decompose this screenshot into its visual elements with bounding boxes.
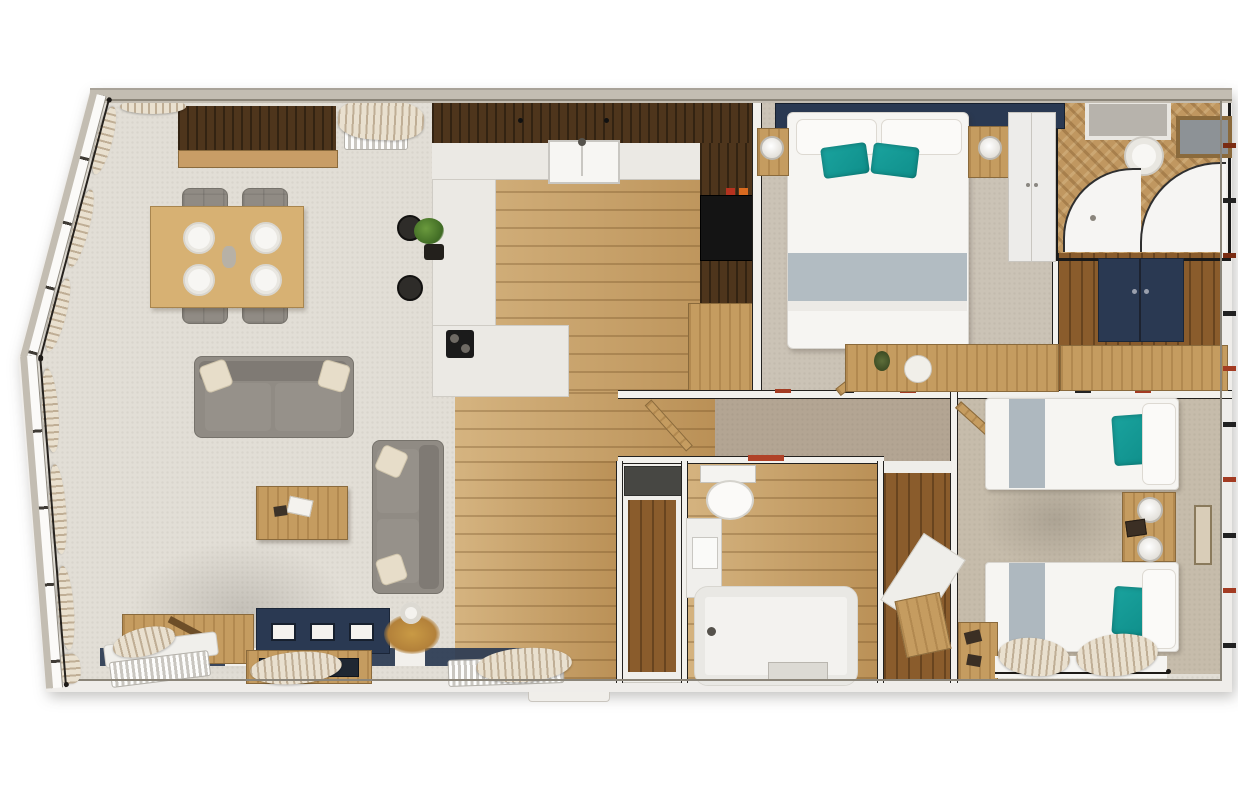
bath-faucet <box>707 627 716 636</box>
rail-finial <box>1166 669 1171 674</box>
rail-finial <box>106 97 112 103</box>
cabinet-handle <box>518 118 523 123</box>
shower-drain <box>1090 215 1096 221</box>
wall-cupboard-left <box>616 461 623 683</box>
kitchen-sink <box>548 140 620 184</box>
sideboard <box>178 106 336 150</box>
cabinet-handle <box>1132 289 1137 294</box>
airing-cupboard-floor <box>628 500 676 672</box>
dressing-oak-bench <box>1060 345 1228 391</box>
sofa-seat <box>275 383 341 431</box>
bed-runner <box>788 253 967 301</box>
ensuite-mirror <box>1176 116 1232 158</box>
tall-black-appliance <box>700 195 756 261</box>
cladding-tick <box>1223 311 1236 316</box>
right-wall-inner-line <box>1220 101 1222 681</box>
media-frame <box>349 623 374 641</box>
desk-frame <box>964 629 982 645</box>
wall-art <box>1194 505 1212 565</box>
bar-stool <box>397 275 423 301</box>
sink-divider <box>581 144 583 176</box>
cladding-tick <box>1223 253 1236 258</box>
cabinet-handle <box>604 118 609 123</box>
vanity-sink <box>692 537 718 569</box>
sink-faucet <box>578 138 586 146</box>
dressing-table <box>845 344 1059 392</box>
wardrobe-door-split <box>1031 113 1032 261</box>
place-setting <box>250 264 282 296</box>
wardrobe-handle <box>1026 183 1030 187</box>
teal-cushion <box>820 142 870 179</box>
media-wall <box>256 608 390 654</box>
bed-runner <box>1009 399 1045 488</box>
spice-jar <box>739 188 748 195</box>
wall-bathroom-wardrobe <box>877 461 884 683</box>
lower-oak-cabinet <box>688 303 756 395</box>
teal-cushion <box>870 142 919 178</box>
twin-bed-top <box>985 398 1179 490</box>
toilet-bowl <box>706 480 754 520</box>
media-frame <box>271 623 296 641</box>
cladding-tick <box>1223 643 1236 648</box>
sideboard-front <box>178 150 338 168</box>
coffee-table-decor <box>273 505 287 517</box>
cabinet-split <box>1139 259 1141 341</box>
cladding-tick <box>1223 198 1236 203</box>
cladding-tick <box>1223 422 1236 427</box>
inner-hall-carpet <box>715 397 952 461</box>
skylight <box>1085 100 1171 140</box>
place-setting <box>250 222 282 254</box>
wardrobe-top-shelf <box>884 461 952 473</box>
pan <box>461 344 470 353</box>
pillow <box>1142 569 1176 649</box>
place-setting <box>183 222 215 254</box>
pillow <box>1142 403 1176 485</box>
cladding-tick <box>1223 588 1236 593</box>
cladding-tick <box>1223 477 1236 482</box>
rail-finial <box>64 682 69 687</box>
cladding-tick <box>1223 533 1236 538</box>
cooktop <box>446 330 474 358</box>
corner-desk <box>958 622 998 680</box>
photo-frame <box>1125 519 1147 538</box>
floor-plan-render <box>0 0 1238 795</box>
media-frame <box>310 623 335 641</box>
bedside-lamp <box>1137 536 1163 562</box>
spice-jar <box>726 188 735 195</box>
bar-plant <box>414 218 444 244</box>
wall-twin-left <box>950 392 958 683</box>
plant-pot <box>424 244 444 260</box>
bedside-lamp <box>978 136 1002 160</box>
table-centerpiece <box>222 246 236 268</box>
bath-mat <box>768 662 828 680</box>
sofa-back <box>419 445 439 589</box>
entrance-step <box>528 692 610 702</box>
master-double-bed <box>787 112 969 349</box>
airing-cupboard-shelf <box>624 466 682 496</box>
bottom-wall-inner-line <box>56 679 1222 681</box>
place-setting <box>183 264 215 296</box>
vanity-plant <box>874 351 890 371</box>
red-towel <box>748 455 784 461</box>
kitchen-wall-cabinets <box>432 103 754 143</box>
vanity-tray <box>904 355 932 383</box>
pan <box>450 334 459 343</box>
bedside-lamp <box>760 136 784 160</box>
cabinet-handle <box>1144 289 1149 294</box>
top-wall-inner-line <box>90 99 1232 101</box>
dressing-navy-cabinet <box>1098 258 1184 342</box>
duvet-fold <box>788 301 967 311</box>
wall-marker <box>775 389 791 393</box>
plant-vase <box>400 602 422 624</box>
wardrobe-handle <box>1034 183 1038 187</box>
cladding-tick <box>1223 143 1236 148</box>
desk-frame <box>966 654 982 667</box>
cladding-tick <box>1223 366 1236 371</box>
rail-finial <box>38 355 43 360</box>
master-wardrobe <box>1008 112 1056 262</box>
